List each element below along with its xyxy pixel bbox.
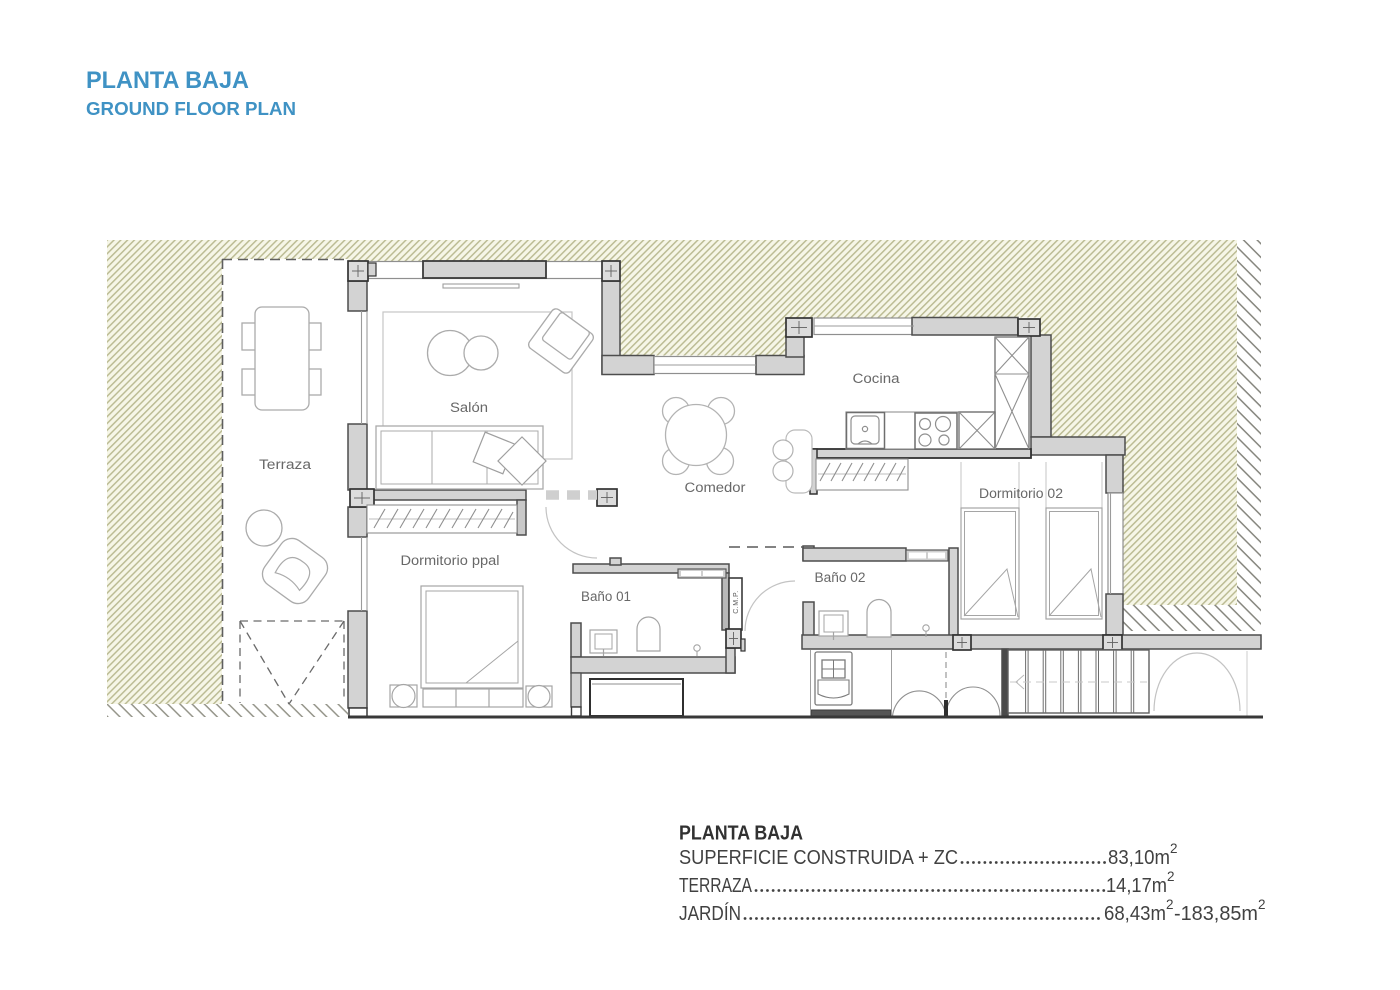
svg-text:PLANTA BAJA: PLANTA BAJA	[86, 67, 249, 94]
svg-text:Cocina: Cocina	[853, 371, 901, 386]
svg-text:Terraza: Terraza	[259, 457, 312, 472]
svg-text:2: 2	[1167, 869, 1175, 884]
svg-text:2: 2	[1166, 897, 1174, 912]
svg-text:2: 2	[1170, 841, 1178, 856]
svg-text:Salón: Salón	[450, 400, 488, 415]
svg-text:PLANTA BAJA: PLANTA BAJA	[679, 823, 803, 845]
svg-text:-183,85m: -183,85m	[1174, 902, 1258, 925]
svg-text:SUPERFICIE CONSTRUIDA + ZC: SUPERFICIE CONSTRUIDA + ZC	[679, 846, 958, 869]
svg-text:Comedor: Comedor	[685, 480, 747, 495]
svg-text:Baño 01: Baño 01	[581, 589, 631, 604]
svg-text:83,10m: 83,10m	[1108, 846, 1170, 869]
svg-text:Dormitorio ppal: Dormitorio ppal	[401, 553, 500, 568]
svg-text:C.M.P.: C.M.P.	[733, 590, 740, 614]
svg-text:14,17m: 14,17m	[1106, 874, 1167, 897]
svg-text:68,43m: 68,43m	[1104, 902, 1166, 925]
svg-text:TERRAZA: TERRAZA	[679, 874, 752, 897]
svg-text:2: 2	[1258, 897, 1266, 912]
svg-text:Baño 02: Baño 02	[815, 570, 866, 585]
svg-text:JARDÍN: JARDÍN	[679, 902, 741, 925]
svg-text:Dormitorio 02: Dormitorio 02	[979, 486, 1063, 501]
svg-text:GROUND FLOOR PLAN: GROUND FLOOR PLAN	[86, 99, 296, 119]
